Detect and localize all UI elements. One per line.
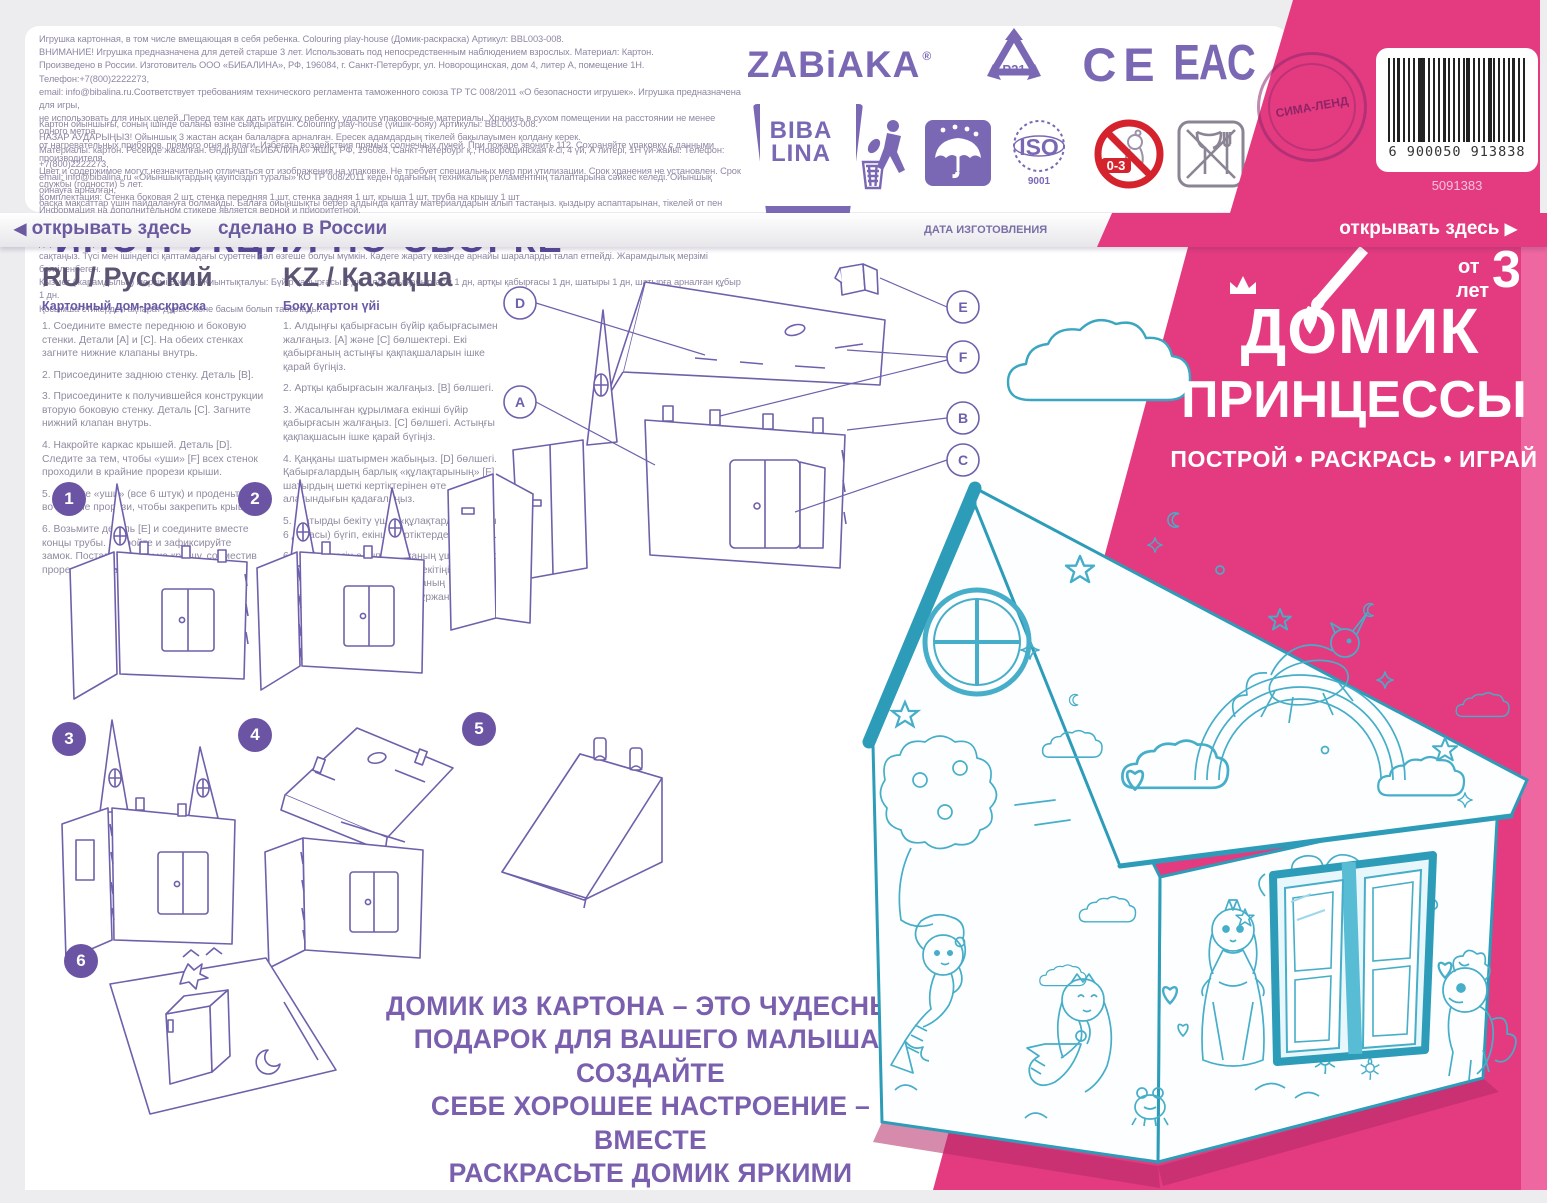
step1-sketch (62, 474, 262, 704)
step-number-2: 2 (238, 482, 272, 516)
kz-lang-title: KZ / Қазақша (283, 262, 511, 293)
step-number-5: 5 (462, 712, 496, 746)
package-back: ИНСТРУКЦИЯ ПО СБОРКЕ Игрушка картонная, … (0, 0, 1547, 1203)
iso-icon: ISO 9001 (1007, 118, 1071, 192)
house-illustration (825, 450, 1547, 1190)
ru-step: 1. Соедините вместе переднюю и боковую с… (42, 320, 264, 361)
svg-text:ISO: ISO (1019, 134, 1059, 160)
eac-mark: EAC (1177, 24, 1251, 102)
arrow-left-icon: ◀ (14, 221, 26, 238)
recycle-icon: P21 (977, 24, 1051, 98)
step6-sketch (88, 942, 353, 1137)
svg-text:A: A (515, 394, 525, 410)
open-here-band: ◀ открывать здесь сделано в России ДАТА … (0, 213, 1547, 247)
ru-subtitle: Картонный дом-раскраска (42, 299, 264, 313)
kz-step: 1. Алдыңғы қабырғасын бүйір қабырғасымен… (283, 320, 511, 374)
product-title-line1: ДОМИК (1190, 294, 1530, 368)
ce-mark: CE (1083, 34, 1161, 94)
ru-step: 2. Присоедините заднюю стенку. Деталь [B… (42, 369, 264, 383)
zabiaka-logo: ZABiAKA® (737, 34, 942, 96)
step-number-3: 3 (52, 722, 86, 756)
keep-dry-icon (925, 120, 991, 186)
product-tagline: ПОСТРОЙ • РАСКРАСЬ • ИГРАЙ (1168, 446, 1540, 473)
arrow-right-icon: ▶ (1505, 221, 1517, 238)
litter-icon (857, 118, 913, 190)
registered-mark: ® (922, 49, 932, 63)
age-badge-prefix: от (1458, 256, 1480, 279)
step4-sketch (245, 710, 460, 975)
kz-subtitle: Боку картон үйі (283, 299, 511, 313)
step-number-6: 6 (64, 944, 98, 978)
product-title-line2: ПРИНЦЕССЫ (1168, 370, 1540, 430)
barcode-sub-number: 5091383 (1376, 178, 1538, 193)
manufacture-date-label: ДАТА ИЗГОТОВЛЕНИЯ (924, 224, 1047, 236)
open-here-right: открывать здесь ▶ (1339, 218, 1517, 240)
ru-lang-title: RU / Русский (42, 262, 264, 293)
bibalina-logo: BIBA LINA (753, 104, 849, 206)
wall-piece-sketch (438, 468, 543, 633)
svg-text:B: B (958, 410, 968, 426)
step2-sketch (252, 468, 447, 698)
info-card: Игрушка картонная, в том числе вмещающая… (25, 26, 1287, 212)
ru-step: 3. Присоедините к получившейся конструкц… (42, 390, 264, 431)
svg-text:0-3: 0-3 (1107, 158, 1126, 173)
page-margin-bottom (0, 1190, 1547, 1203)
open-here-left: ◀ открывать здесь (14, 218, 192, 240)
barcode-number: 6 900050 913838 (1376, 144, 1538, 160)
svg-text:D: D (515, 295, 525, 311)
step-number-1: 1 (52, 482, 86, 516)
made-in-russia-label: сделано в России (218, 218, 387, 240)
svg-text:P21: P21 (1002, 62, 1025, 77)
bibalina-logo-text: BIBA LINA (753, 120, 849, 166)
barcode-bars (1388, 58, 1526, 142)
kz-step: 3. Жасалынған құрылмаға екінші бүйір қаб… (283, 404, 511, 445)
step-number-4: 4 (238, 718, 272, 752)
age-badge-suffix: лет (1456, 280, 1489, 303)
no-food-contact-icon (1175, 118, 1247, 190)
iso-number: 9001 (1007, 176, 1071, 187)
age-badge-number: 3 (1492, 240, 1521, 300)
kz-step: 2. Артқы қабырғасын жалғаңыз. [B] бөлшег… (283, 382, 511, 396)
svg-text:F: F (959, 349, 968, 365)
age-warning-icon: 0-3 (1093, 118, 1165, 190)
svg-text:E: E (958, 299, 967, 315)
step5-sketch (482, 712, 682, 912)
zabiaka-logo-text: ZABiAKA (747, 44, 920, 86)
barcode: 6 900050 913838 (1376, 48, 1538, 172)
crown-icon (1228, 276, 1258, 296)
stamp-text: СИМА-ЛЕНД (1261, 56, 1363, 158)
